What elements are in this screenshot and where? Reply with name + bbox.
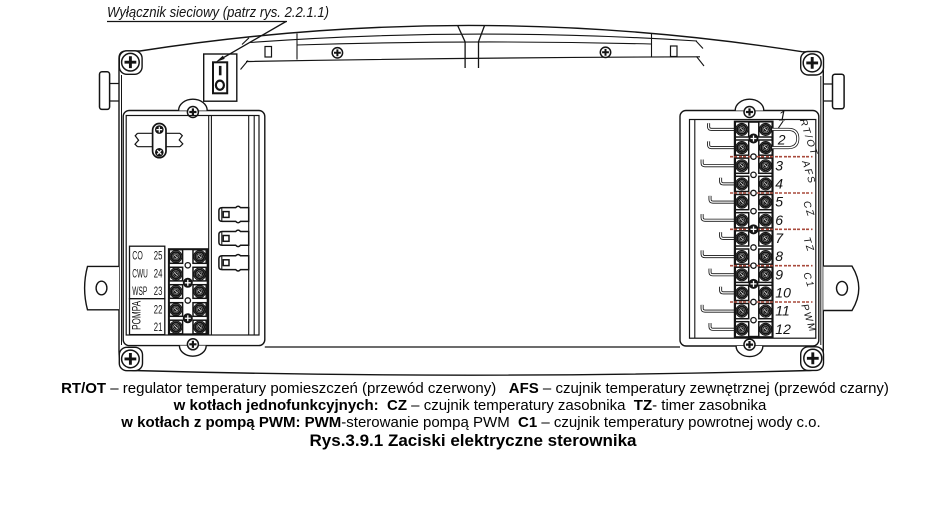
svg-text:Wyłącznik sieciowy (patrz rys.: Wyłącznik sieciowy (patrz rys. 2.2.1.1): [107, 4, 329, 21]
svg-text:11: 11: [775, 303, 790, 319]
svg-text:23: 23: [154, 286, 163, 298]
svg-text:22: 22: [154, 305, 163, 317]
svg-text:8: 8: [775, 248, 783, 264]
svg-text:6: 6: [775, 212, 783, 228]
svg-text:CWU: CWU: [132, 269, 148, 281]
svg-text:9: 9: [775, 266, 783, 282]
svg-text:12: 12: [775, 321, 791, 337]
svg-text:24: 24: [154, 269, 163, 281]
svg-text:CO: CO: [132, 250, 143, 262]
svg-text:POMPA: POMPA: [131, 301, 143, 330]
svg-text:21: 21: [154, 322, 163, 334]
svg-text:10: 10: [775, 285, 791, 301]
svg-text:7: 7: [775, 230, 784, 246]
svg-text:25: 25: [154, 250, 163, 262]
svg-text:5: 5: [775, 194, 783, 210]
svg-text:4: 4: [775, 176, 783, 192]
svg-text:2: 2: [777, 132, 786, 148]
svg-text:3: 3: [775, 157, 783, 173]
svg-text:WSP: WSP: [132, 286, 147, 298]
svg-text:1: 1: [779, 108, 787, 124]
